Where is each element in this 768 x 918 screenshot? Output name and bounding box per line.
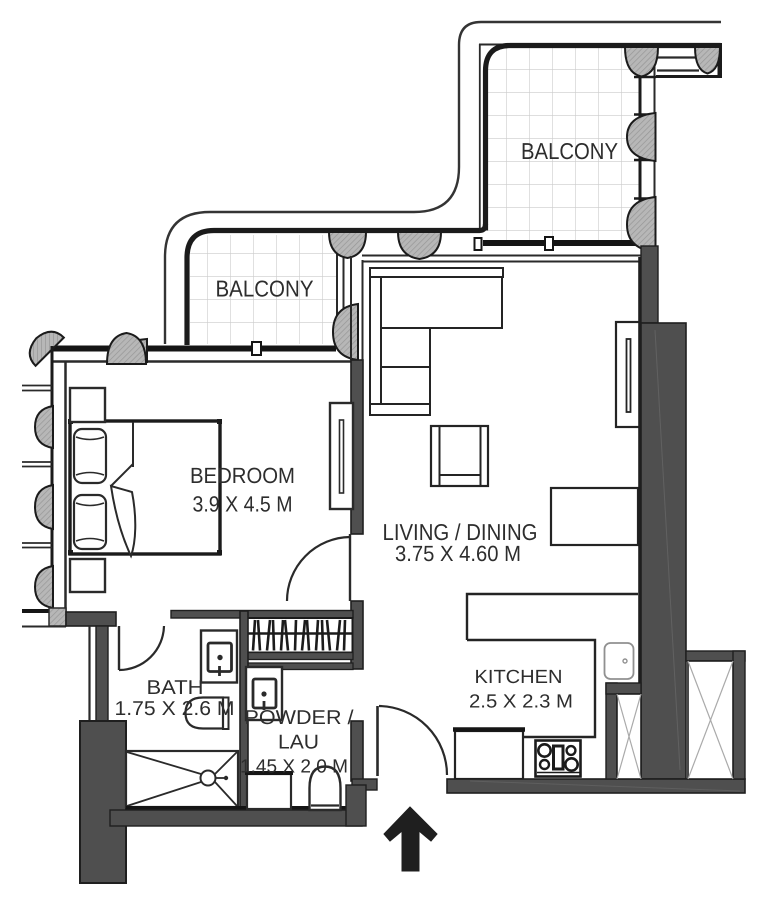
svg-text:LAU: LAU [278, 732, 319, 754]
svg-text:3.9 X 4.5 M: 3.9 X 4.5 M [193, 492, 293, 517]
svg-text:1.75 X 2.6 M: 1.75 X 2.6 M [115, 698, 235, 720]
svg-text:2.5 X 2.3 M: 2.5 X 2.3 M [469, 692, 573, 713]
svg-text:BATH: BATH [147, 677, 204, 699]
svg-text:POWDER /: POWDER / [245, 707, 354, 729]
svg-text:BALCONY: BALCONY [521, 138, 618, 164]
svg-text:KITCHEN: KITCHEN [475, 667, 563, 688]
svg-text:3.75 X 4.60 M: 3.75 X 4.60 M [395, 541, 521, 566]
svg-text:BALCONY: BALCONY [216, 276, 314, 302]
svg-text:1.45 X 2.0 M: 1.45 X 2.0 M [240, 757, 348, 778]
svg-text:BEDROOM: BEDROOM [190, 463, 295, 488]
